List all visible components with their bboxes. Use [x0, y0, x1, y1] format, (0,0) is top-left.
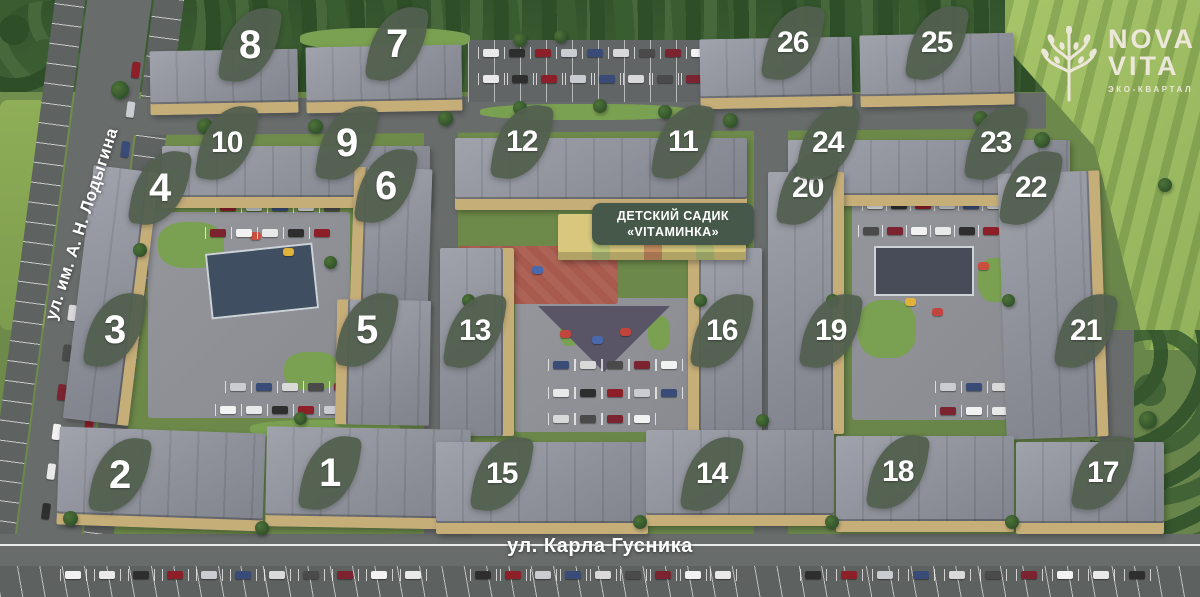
car-icon	[580, 361, 596, 369]
parking-row	[548, 413, 656, 425]
logo-subtitle: ЭКО-КВАРТАЛ	[1108, 86, 1196, 94]
car-icon	[1057, 571, 1073, 579]
tree-icon	[1040, 26, 1098, 102]
car-icon	[634, 415, 650, 423]
parking-row	[548, 387, 683, 399]
car-icon	[685, 571, 701, 579]
tree-icon	[554, 30, 567, 43]
car-icon	[587, 49, 603, 57]
car-icon	[607, 415, 623, 423]
car-icon	[613, 49, 629, 57]
car-icon	[657, 75, 673, 83]
car-icon	[715, 571, 731, 579]
car-icon	[949, 571, 965, 579]
parking-row	[470, 569, 740, 581]
car-icon	[553, 415, 569, 423]
car-icon	[535, 49, 551, 57]
marker-number: 8	[239, 25, 261, 65]
tree-icon	[1005, 515, 1019, 529]
car-icon	[570, 75, 586, 83]
car-icon	[41, 503, 51, 520]
car-icon	[99, 571, 115, 579]
marker-number: 16	[706, 316, 737, 346]
car-icon	[959, 227, 975, 235]
car-icon	[553, 389, 569, 397]
parking-row	[215, 404, 345, 416]
car-icon	[887, 227, 903, 235]
marker-number: 7	[386, 24, 408, 64]
car-icon	[371, 571, 387, 579]
marker-number: 10	[211, 128, 242, 158]
car-icon	[201, 571, 217, 579]
car-icon	[303, 571, 319, 579]
marker-number: 22	[1015, 173, 1046, 203]
car-icon	[220, 406, 236, 414]
logo-word-vita: VITA	[1108, 53, 1196, 80]
logo: NOVA VITA ЭКО-КВАРТАЛ	[1040, 26, 1196, 102]
car-icon	[940, 383, 956, 391]
parking-row	[548, 359, 683, 371]
marker-number: 11	[668, 127, 698, 157]
car-icon	[509, 49, 525, 57]
marker-number: 25	[921, 28, 952, 58]
car-icon	[985, 571, 1001, 579]
playground-equipment	[532, 266, 543, 274]
car-icon	[512, 75, 528, 83]
parking-row	[60, 569, 434, 581]
car-icon	[561, 49, 577, 57]
marker-number: 2	[109, 455, 131, 495]
car-icon	[475, 571, 491, 579]
lawn-patch	[858, 300, 916, 358]
tree-icon	[593, 99, 607, 113]
car-icon	[308, 383, 324, 391]
car-icon	[236, 229, 252, 237]
kindergarten-label-line1: ДЕТСКИЙ САДИК	[617, 208, 729, 224]
tree-icon	[513, 33, 527, 47]
tree-icon	[756, 414, 769, 427]
building-block	[436, 442, 648, 534]
car-icon	[665, 49, 681, 57]
car-icon	[863, 227, 879, 235]
car-icon	[272, 406, 288, 414]
tree-icon	[438, 111, 453, 126]
playground-equipment	[978, 262, 989, 270]
car-icon	[661, 361, 677, 369]
car-icon	[841, 571, 857, 579]
playground-equipment	[283, 248, 294, 256]
car-icon	[628, 75, 644, 83]
car-icon	[131, 61, 141, 78]
car-icon	[625, 571, 641, 579]
car-icon	[565, 571, 581, 579]
car-icon	[599, 75, 615, 83]
playground-equipment	[905, 298, 916, 306]
tree-icon	[63, 511, 78, 526]
car-icon	[405, 571, 421, 579]
car-icon	[655, 571, 671, 579]
sports-court	[205, 243, 319, 320]
marker-number: 14	[696, 459, 727, 489]
marker-number: 24	[812, 128, 843, 158]
car-icon	[661, 389, 677, 397]
tree-icon	[723, 113, 738, 128]
parking-row	[800, 569, 1160, 581]
kindergarten-label-line2: «VITАМИНКА»	[627, 224, 719, 240]
car-icon	[230, 383, 246, 391]
car-icon	[553, 361, 569, 369]
masterplan-scene: ДЕТСКИЙ САДИК «VITАМИНКА» 12345678910111…	[0, 0, 1200, 597]
car-icon	[940, 407, 956, 415]
car-icon	[580, 415, 596, 423]
kindergarten-label: ДЕТСКИЙ САДИК «VITАМИНКА»	[592, 203, 754, 245]
parking-row	[858, 225, 1002, 237]
car-icon	[314, 229, 330, 237]
tree-icon	[1002, 294, 1015, 307]
tree-icon	[308, 119, 323, 134]
tree-icon	[294, 412, 307, 425]
car-icon	[595, 571, 611, 579]
car-icon	[483, 49, 499, 57]
car-icon	[246, 406, 262, 414]
car-icon	[262, 229, 278, 237]
marker-number: 12	[506, 127, 537, 157]
tree-icon	[658, 105, 672, 119]
logo-text: NOVA VITA ЭКО-КВАРТАЛ	[1108, 26, 1196, 94]
tree-icon	[133, 243, 147, 257]
car-icon	[607, 361, 623, 369]
car-icon	[65, 571, 81, 579]
car-icon	[935, 227, 951, 235]
car-icon	[805, 571, 821, 579]
car-icon	[133, 571, 149, 579]
sports-court	[874, 246, 974, 296]
marker-number: 17	[1087, 458, 1118, 488]
car-icon	[46, 463, 56, 480]
marker-number: 15	[486, 459, 517, 489]
car-icon	[256, 383, 272, 391]
tree-icon	[633, 515, 647, 529]
car-icon	[1093, 571, 1109, 579]
marker-number: 21	[1070, 316, 1101, 346]
car-icon	[639, 49, 655, 57]
tree-icon	[324, 256, 337, 269]
car-icon	[505, 571, 521, 579]
parking-row	[205, 227, 335, 239]
car-icon	[1021, 571, 1037, 579]
car-icon	[634, 361, 650, 369]
marker-number: 5	[356, 310, 378, 350]
tree-icon	[1158, 178, 1172, 192]
tree-icon	[255, 521, 269, 535]
tree-icon	[1139, 411, 1157, 429]
car-icon	[282, 383, 298, 391]
playground-equipment	[592, 336, 603, 344]
car-icon	[483, 75, 499, 83]
tree-icon	[1034, 132, 1050, 148]
parking-row	[478, 47, 712, 59]
marker-number: 6	[375, 166, 397, 206]
playground-equipment	[620, 328, 631, 336]
car-icon	[120, 141, 130, 158]
car-icon	[634, 389, 650, 397]
car-icon	[288, 229, 304, 237]
car-icon	[966, 407, 982, 415]
tree-icon	[825, 515, 839, 529]
car-icon	[535, 571, 551, 579]
playground-equipment	[932, 308, 943, 316]
car-icon	[983, 227, 999, 235]
marker-number: 13	[459, 316, 490, 346]
marker-number: 1	[319, 453, 341, 493]
car-icon	[235, 571, 251, 579]
marker-number: 9	[336, 123, 358, 163]
car-icon	[210, 229, 226, 237]
building-block	[56, 426, 265, 531]
marker-number: 18	[882, 457, 913, 487]
marker-number: 26	[777, 28, 808, 58]
marker-number: 23	[980, 128, 1011, 158]
logo-word-nova: NOVA	[1108, 26, 1196, 53]
car-icon	[911, 227, 927, 235]
car-icon	[966, 383, 982, 391]
car-icon	[1129, 571, 1145, 579]
marker-number: 4	[149, 168, 171, 208]
marker-number: 19	[815, 316, 846, 346]
parking-row	[478, 73, 710, 85]
car-icon	[337, 571, 353, 579]
street-label-gusnika: ул. Карла Гусника	[400, 535, 800, 558]
car-icon	[580, 389, 596, 397]
car-icon	[607, 389, 623, 397]
marker-number: 3	[104, 310, 126, 350]
car-icon	[541, 75, 557, 83]
playground-equipment	[560, 330, 571, 338]
car-icon	[913, 571, 929, 579]
car-icon	[167, 571, 183, 579]
car-icon	[877, 571, 893, 579]
car-icon	[269, 571, 285, 579]
tree-icon	[694, 294, 707, 307]
